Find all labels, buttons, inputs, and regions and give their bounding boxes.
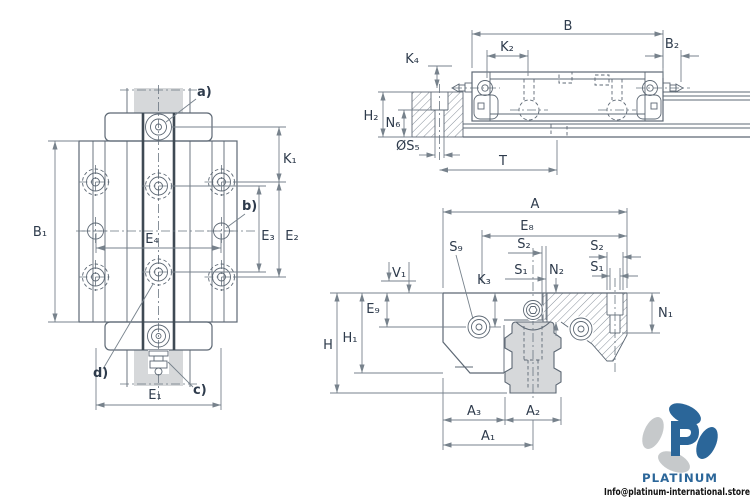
grease-port-left	[466, 314, 492, 340]
technical-drawing-page: B₁ K₁ E₃ E₂ E₄ E₁ a) b) c) d)	[0, 0, 750, 500]
ref-label-c: c)	[193, 383, 207, 398]
grease-nipple-bottom	[148, 350, 169, 375]
dim-label-b2: B₂	[665, 37, 679, 52]
dim-label-s1-right: S₁	[590, 260, 603, 275]
dim-label-s1-center: S₁	[514, 263, 527, 278]
dim-label-h: H	[323, 338, 333, 353]
dim-label-k2: K₂	[500, 40, 514, 55]
dim-label-t: T	[498, 154, 507, 169]
dim-label-n1: N₁	[658, 306, 673, 321]
rail-bolt-head	[522, 299, 544, 321]
dim-label-a2: A₂	[526, 404, 540, 419]
dim-label-k3: K₃	[477, 273, 491, 288]
dim-label-a3: A₃	[467, 404, 481, 419]
dim-label-e1: E₁	[148, 388, 161, 403]
dim-label-e3: E₃	[261, 229, 274, 244]
dim-label-b1: B₁	[33, 225, 47, 240]
dim-label-h1: H₁	[343, 331, 358, 346]
dim-label-a1: A₁	[481, 429, 495, 444]
ref-label-a: a)	[197, 85, 212, 100]
linear-guide-drawing: B₁ K₁ E₃ E₂ E₄ E₁ a) b) c) d)	[0, 0, 750, 500]
platinum-email: Info@platinum-international.store	[604, 487, 750, 498]
ref-label-b: b)	[242, 199, 257, 214]
dim-label-e4: E₄	[145, 232, 158, 247]
dim-label-s9: S₉	[449, 240, 462, 255]
dim-label-e2: E₂	[285, 229, 298, 244]
dim-label-k4: K₄	[405, 52, 419, 67]
dim-label-e8: E₈	[520, 219, 533, 234]
grease-port-right	[568, 316, 594, 342]
ref-label-d: d)	[93, 366, 108, 381]
dim-label-s2-center: S₂	[517, 237, 530, 252]
platinum-wordmark: PLATINUM	[642, 471, 718, 485]
dim-label-s5: ØS₅	[396, 139, 420, 154]
dim-label-v1: V₁	[392, 266, 406, 281]
dim-label-a: A	[531, 197, 540, 212]
dim-label-h2: H₂	[364, 109, 379, 124]
background	[0, 0, 750, 500]
dim-label-e9: E₉	[366, 302, 379, 317]
dim-label-n2: N₂	[549, 263, 564, 278]
dim-label-k1: K₁	[283, 152, 297, 167]
dim-label-b: B	[564, 19, 573, 34]
dim-label-n6: N₆	[386, 116, 401, 131]
dim-label-s2-right: S₂	[590, 239, 603, 254]
